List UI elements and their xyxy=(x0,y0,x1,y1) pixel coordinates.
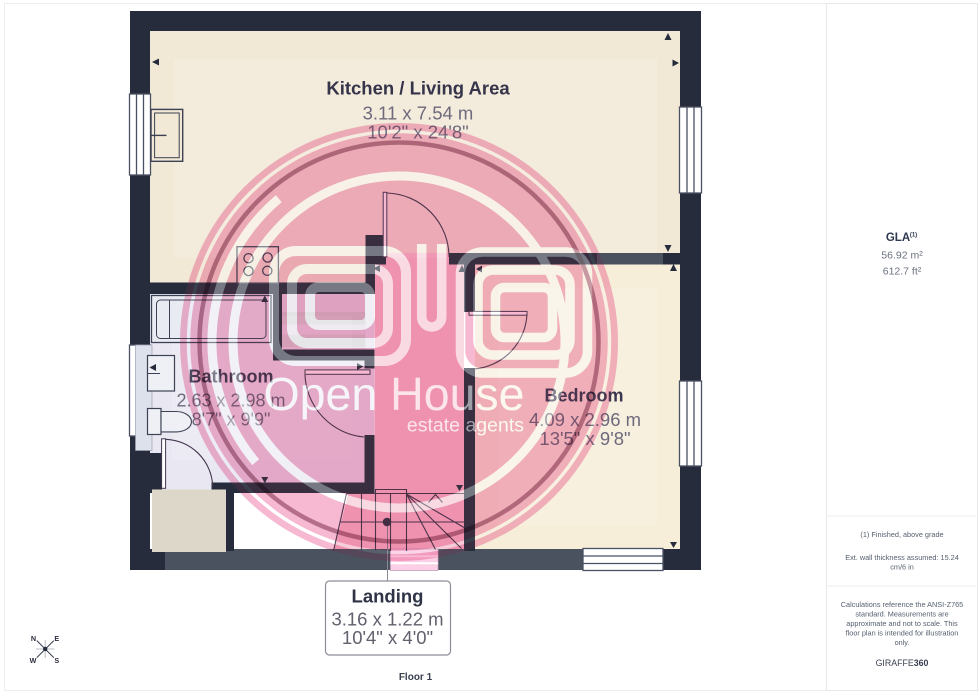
svg-text:S: S xyxy=(54,656,59,665)
svg-text:612.7 ft²: 612.7 ft² xyxy=(883,266,922,278)
svg-text:estate agents: estate agents xyxy=(407,415,524,437)
svg-text:3.11 x 7.54 m: 3.11 x 7.54 m xyxy=(363,103,474,124)
svg-text:Calculations reference the ANS: Calculations reference the ANSI-Z765 xyxy=(841,600,964,609)
svg-text:Kitchen / Living Area: Kitchen / Living Area xyxy=(326,78,510,99)
svg-text:Ext. wall thickness assumed: 1: Ext. wall thickness assumed: 15.24 xyxy=(845,553,959,562)
svg-text:(1): (1) xyxy=(910,233,917,239)
svg-text:N: N xyxy=(31,634,36,643)
svg-text:floor plan is intended for ill: floor plan is intended for illustration xyxy=(846,629,959,638)
svg-text:only.: only. xyxy=(895,638,910,647)
svg-text:56.92 m²: 56.92 m² xyxy=(881,250,923,262)
svg-text:cm/6 in: cm/6 in xyxy=(890,563,914,572)
svg-text:E: E xyxy=(54,634,59,643)
svg-text:standard. Measurements are: standard. Measurements are xyxy=(855,610,948,619)
svg-text:Landing: Landing xyxy=(352,586,424,607)
svg-text:(1) Finished, above grade: (1) Finished, above grade xyxy=(860,530,943,539)
svg-text:Floor 1: Floor 1 xyxy=(399,672,433,683)
svg-text:Open House: Open House xyxy=(263,368,524,420)
svg-text:10'4" x 4'0": 10'4" x 4'0" xyxy=(342,627,433,648)
svg-text:approximate and not to scale.: approximate and not to scale. This xyxy=(846,619,958,628)
svg-text:W: W xyxy=(30,656,37,665)
svg-text:GIRAFFE360: GIRAFFE360 xyxy=(876,658,929,668)
svg-text:GLA: GLA xyxy=(886,232,910,244)
